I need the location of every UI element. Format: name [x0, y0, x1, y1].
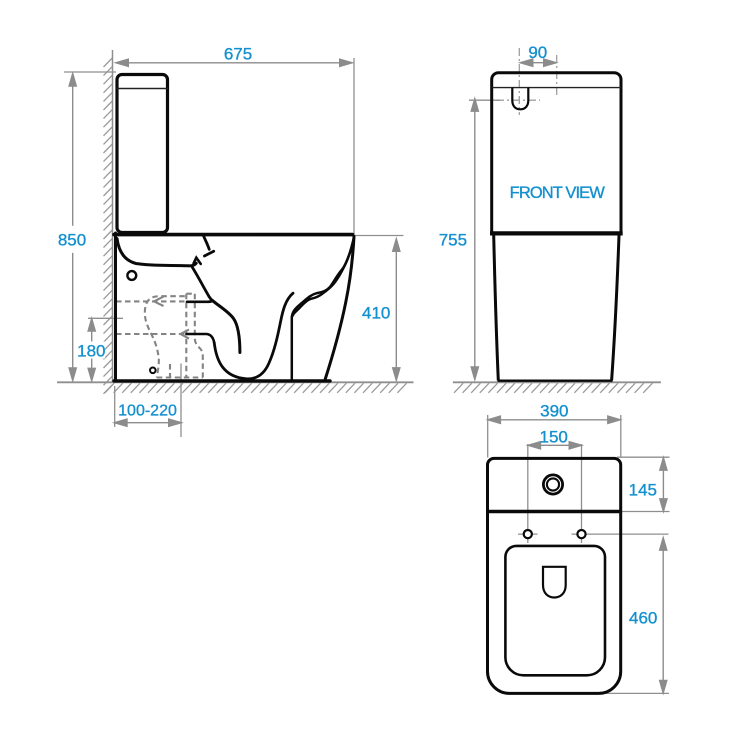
svg-text:390: 390: [540, 401, 568, 420]
svg-text:90: 90: [528, 43, 547, 62]
svg-text:850: 850: [58, 230, 86, 249]
svg-text:675: 675: [224, 44, 252, 63]
svg-text:150: 150: [540, 427, 568, 446]
svg-text:460: 460: [629, 608, 657, 627]
svg-text:180: 180: [77, 341, 105, 360]
svg-text:755: 755: [439, 230, 467, 249]
svg-text:100-220: 100-220: [118, 402, 177, 419]
svg-text:FRONT VIEW: FRONT VIEW: [510, 184, 606, 202]
svg-text:145: 145: [629, 481, 657, 500]
svg-text:410: 410: [362, 303, 390, 322]
